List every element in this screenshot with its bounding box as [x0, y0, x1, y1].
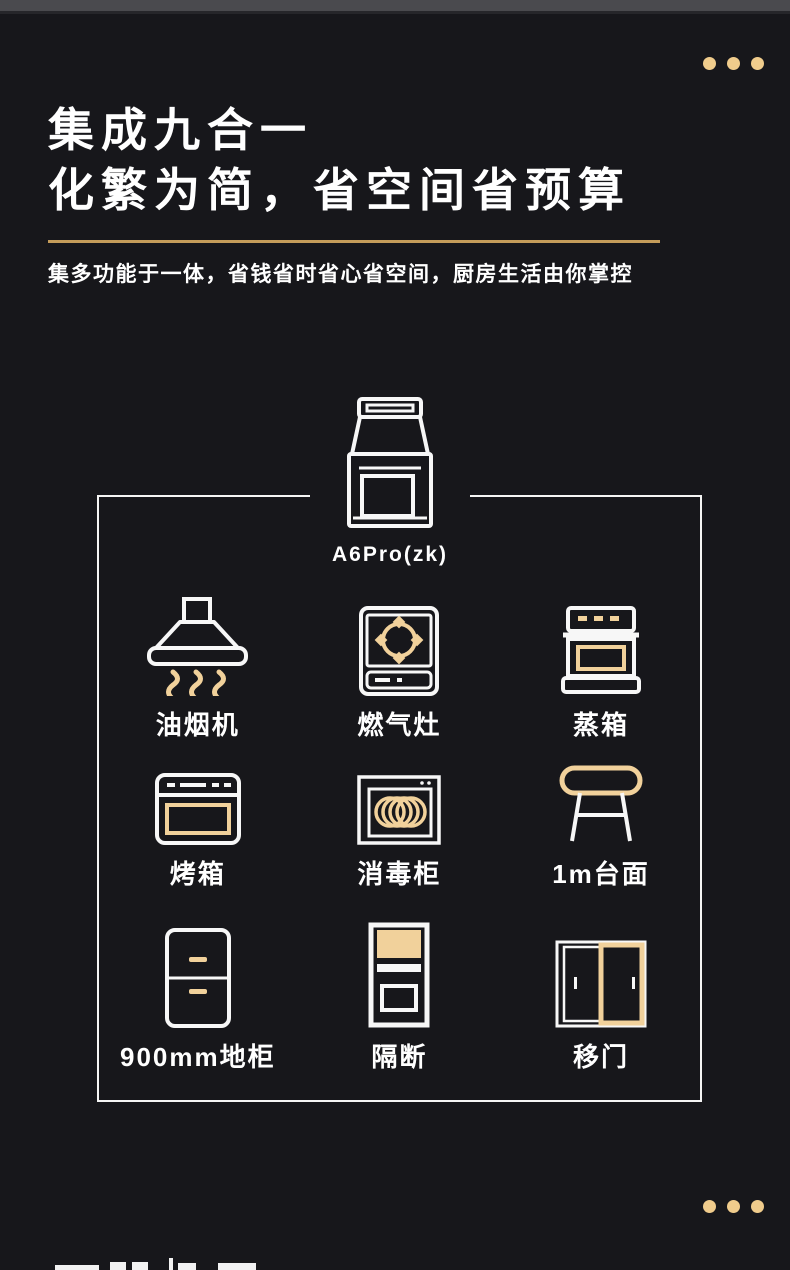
feature-row-1: 油烟机 燃气灶: [97, 596, 702, 742]
gold-dot: [703, 1200, 716, 1213]
feature-cell: 900mm地柜: [97, 920, 299, 1074]
cropped-text-fragment: [110, 1262, 126, 1270]
feature-cell: 燃气灶: [299, 596, 501, 742]
gas-stove-icon: [359, 606, 439, 696]
cropped-text-fragment: [55, 1265, 99, 1270]
feature-label: 900mm地柜: [120, 1037, 276, 1074]
feature-row-3: 900mm地柜 隔断 移门: [97, 920, 702, 1074]
range-hood-icon: [146, 596, 250, 696]
integrated-stove-icon: [345, 396, 435, 536]
feature-label: 烤箱: [170, 854, 226, 891]
gold-dot: [751, 57, 764, 70]
floor-cabinet-icon: [165, 928, 231, 1028]
feature-cell: 1m台面: [500, 763, 702, 891]
feature-label: 蒸箱: [573, 705, 629, 742]
product-icon: [310, 396, 470, 540]
decor-dots-bottom: [703, 1200, 764, 1213]
feature-cell: 油烟机: [97, 596, 299, 742]
model-label: A6Pro(zk): [260, 543, 520, 567]
partition-icon: [368, 922, 430, 1028]
feature-label: 移门: [573, 1037, 629, 1074]
top-bar-edge: [0, 11, 790, 14]
decor-dots-top: [703, 57, 764, 70]
gold-dot: [727, 57, 740, 70]
gold-dot: [703, 57, 716, 70]
disinfection-cabinet-icon: [357, 775, 441, 845]
oven-icon: [155, 773, 241, 845]
subtitle: 集多功能于一体，省钱省时省心省空间，厨房生活由你掌控: [48, 258, 633, 288]
title-line-2: 化繁为简，省空间省预算: [48, 160, 631, 220]
gold-dot: [751, 1200, 764, 1213]
feature-label: 隔断: [371, 1037, 427, 1074]
cropped-text-fragment: [218, 1263, 256, 1270]
steam-oven-icon: [557, 606, 645, 696]
feature-cell: 移门: [500, 920, 702, 1074]
feature-row-2: 烤箱 消毒柜 1m台面: [97, 763, 702, 891]
feature-cell: 烤箱: [97, 763, 299, 891]
countertop-icon: [559, 765, 643, 845]
cropped-text-fragment: [178, 1263, 196, 1270]
feature-cell: 蒸箱: [500, 596, 702, 742]
gold-dot: [727, 1200, 740, 1213]
cropped-text-fragment: [132, 1262, 148, 1270]
cropped-text-fragment: [169, 1258, 173, 1270]
page-title: 集成九合一 化繁为简，省空间省预算: [48, 100, 631, 220]
sliding-door-icon: [555, 940, 647, 1028]
feature-cell: 消毒柜: [299, 763, 501, 891]
feature-label: 1m台面: [552, 854, 650, 891]
title-line-1: 集成九合一: [48, 100, 631, 160]
feature-label: 燃气灶: [357, 705, 441, 742]
gold-divider-rule: [48, 240, 660, 243]
feature-cell: 隔断: [299, 920, 501, 1074]
top-bar: [0, 0, 790, 11]
feature-label: 消毒柜: [357, 854, 441, 891]
feature-label: 油烟机: [156, 705, 240, 742]
